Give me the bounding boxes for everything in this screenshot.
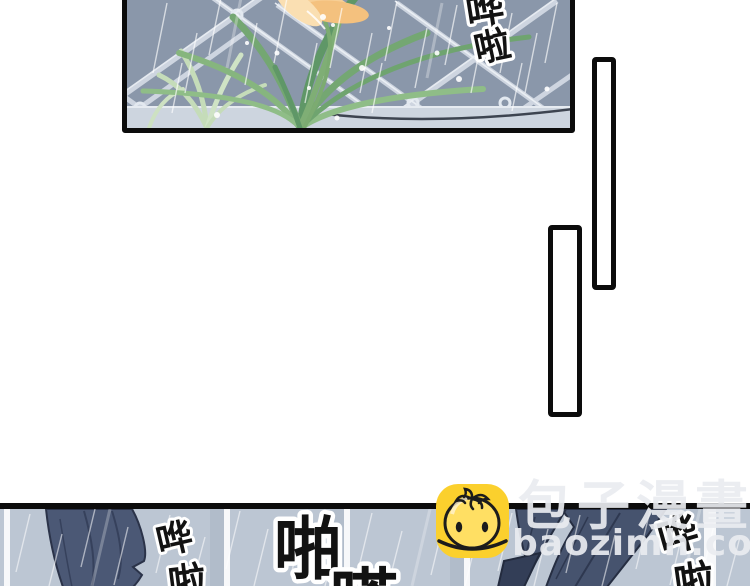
sfx-bottom-left-char-2: 啦 [166,558,209,586]
baozi-bun-art [436,484,509,558]
top-panel-art: 哗 啦 [127,0,570,128]
sfx-bottom-center-char-2: 嗒 [330,562,399,586]
divider-bar-tall [592,57,616,290]
ledge-band [127,108,570,128]
watermark-site-url: baozimh.com [512,526,750,562]
divider-bar-short [548,225,582,417]
sfx-bottom-left-char-1: 哗 [152,516,196,564]
baozi-bun-mascot-icon [436,484,509,558]
comic-page: 哗 啦 [0,0,750,586]
panel-top-fence-scene: 哗 啦 [122,0,575,133]
